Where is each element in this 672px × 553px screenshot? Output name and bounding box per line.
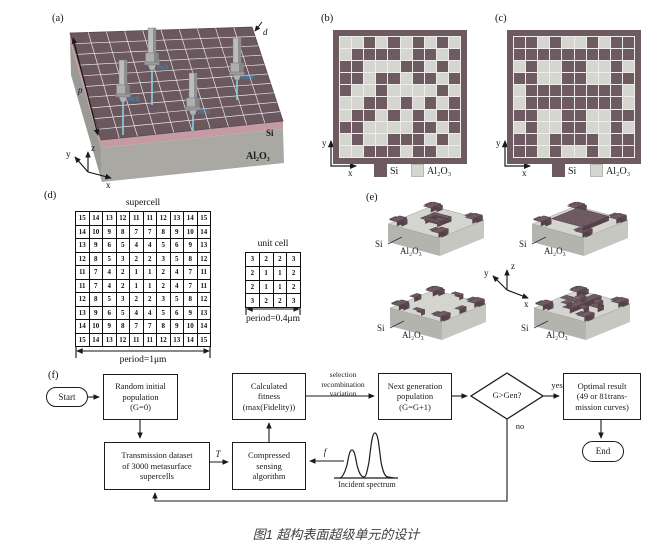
supercell-title: supercell [75,198,211,208]
pattern-cell [449,73,460,84]
transmission-matrix-label: T [212,449,224,459]
pattern-cell [413,110,424,121]
pattern-cell [425,85,436,96]
table-cell: 4 [171,266,184,279]
pattern-cell [388,110,399,121]
shape [154,53,159,62]
pattern-cell [550,97,561,108]
pattern-cell [611,134,622,145]
pattern-cell [376,61,387,72]
pattern-cell [550,110,561,121]
d-tick [255,22,262,31]
pattern-cell [388,73,399,84]
table-cell: 12 [76,293,89,306]
pattern-cell [550,134,561,145]
pattern-cell [538,97,549,108]
pattern-cell [587,97,598,108]
table-cell: 1 [144,266,157,279]
table-cell: 13 [171,334,184,347]
pattern-cell [376,134,387,145]
table-cell: 12 [157,334,170,347]
pattern-cell [526,97,537,108]
table-cell: 3 [246,253,259,266]
pattern-cell [425,61,436,72]
pattern-cell [587,73,598,84]
pattern-cell [538,110,549,121]
random-population-node: Random initial population (G=0) [103,374,178,420]
pattern-cell [388,37,399,48]
pattern-cell [425,122,436,133]
table-cell: 2 [117,280,130,293]
pattern-cell [611,73,622,84]
pattern-cell [526,49,537,60]
pattern-cell [340,73,351,84]
table-cell: 2 [130,253,143,266]
pattern-cell [526,122,537,133]
panel-b-al2o3-swatch [411,164,424,177]
table-cell: 7 [144,320,157,333]
table-cell: 1 [260,281,273,294]
shape [125,85,130,94]
table-cell: 7 [184,280,197,293]
pattern-cell [514,97,525,108]
pattern-cell [352,37,363,48]
panel-c-si-legend: Si [568,166,576,177]
table-cell: 14 [76,226,89,239]
pattern-cell [575,49,586,60]
pattern-cell [526,85,537,96]
pattern-cell [562,110,573,121]
table-cell: 2 [274,294,287,307]
incident-spectrum-curve [334,433,398,478]
panel-b-si-legend: Si [390,166,398,177]
pattern-cell [425,134,436,145]
table-cell: 13 [198,239,211,252]
table-cell: 11 [198,266,211,279]
pattern-cell [340,146,351,157]
table-cell: 13 [76,307,89,320]
pattern-cell [562,97,573,108]
table-cell: 12 [76,253,89,266]
yes-edge-label: yes [545,380,569,390]
pattern-cell [413,49,424,60]
pattern-cell [376,122,387,133]
panel-b-x-label: x [348,168,353,178]
table-cell: 9 [90,239,103,252]
pattern-cell [550,61,561,72]
pattern-cell [437,73,448,84]
table-cell: 8 [90,293,103,306]
si-label: Si [377,323,385,333]
pattern-cell [364,122,375,133]
pattern-cell [587,122,598,133]
pattern-cell [388,49,399,60]
table-cell: 7 [90,266,103,279]
decision-node-label: G>Gen? [471,390,543,400]
pattern-cell [538,37,549,48]
pattern-cell [449,37,460,48]
table-cell: 12 [157,212,170,225]
pattern-cell [611,85,622,96]
pattern-cell [611,97,622,108]
panel-a-label: (a) [52,13,64,24]
shape [124,60,127,85]
pattern-cell [388,122,399,133]
unitcell-slab: SiAl₂O₃ [519,202,628,256]
pattern-cell [550,73,561,84]
next-generation-node: Next generation population (G=G+1) [378,373,452,420]
table-cell: 2 [117,266,130,279]
supercell-table: 1514131211111213141514109877891014139654… [75,211,211,347]
table-cell: 7 [90,280,103,293]
pattern-cell [401,122,412,133]
table-cell: 5 [117,307,130,320]
table-cell: 11 [198,280,211,293]
panel-b-label: (b) [321,13,333,24]
panel-b-pattern-grid [333,30,467,164]
shape [194,73,197,98]
pattern-cell [437,110,448,121]
compressed-sensing-node: Compressed sensing algorithm [232,442,306,490]
pattern-cell [352,122,363,133]
pattern-cell [376,73,387,84]
pattern-cell [599,146,610,157]
si-label: Si [375,239,383,249]
pattern-cell [623,110,634,121]
pattern-cell [425,146,436,157]
table-cell: 1 [260,267,273,280]
table-cell: 9 [103,320,116,333]
table-cell: 4 [103,266,116,279]
table-cell: 4 [171,280,184,293]
pattern-cell [623,97,634,108]
table-cell: 13 [76,239,89,252]
pattern-cell [413,146,424,157]
pattern-cell [449,122,460,133]
pattern-cell [425,49,436,60]
pattern-cell [437,49,448,60]
panel-e-unitcell-renders: SiAl₂O₃SiAl₂O₃SiAl₂O₃SiAl₂O₃ y z x [360,190,672,370]
si-label: Si [519,239,527,249]
pattern-cell [340,122,351,133]
pattern-cell [599,73,610,84]
pattern-cell [376,49,387,60]
table-cell: 2 [157,266,170,279]
pattern-cell [340,134,351,145]
z-axis-label: z [91,143,95,153]
pattern-cell [587,134,598,145]
table-cell: 12 [117,212,130,225]
pattern-cell [623,146,634,157]
pattern-cell [575,97,586,108]
table-cell: 9 [103,226,116,239]
panel-e-x-label: x [524,299,529,309]
pattern-cell [550,146,561,157]
table-cell: 3 [117,253,130,266]
table-cell: 9 [90,307,103,320]
pattern-cell [388,146,399,157]
table-cell: 8 [184,293,197,306]
table-cell: 15 [76,212,89,225]
table-cell: 14 [198,320,211,333]
pattern-cell [599,134,610,145]
pattern-cell [599,37,610,48]
pattern-cell [340,61,351,72]
table-cell: 2 [144,293,157,306]
pattern-cell [623,122,634,133]
incident-f-label: f [319,447,331,457]
pattern-cell [352,97,363,108]
panel-c-pattern-grid [507,30,641,164]
table-cell: 1 [130,266,143,279]
panel-a-3d-schematic: p d etchetchetchetch Si Al₂O₃ y z x [30,5,310,190]
table-cell: 12 [117,334,130,347]
pattern-cell [550,37,561,48]
y-axis-label: y [66,149,71,159]
pattern-cell [587,49,598,60]
pattern-cell [449,134,460,145]
pattern-cell [437,97,448,108]
al2o3-label: Al₂O₃ [544,246,566,256]
pattern-cell [611,49,622,60]
pattern-cell [562,134,573,145]
al2o3-label: Al₂O₃ [246,151,270,162]
optimal-result-node: Optimal result (49 or 81trans- mission c… [563,373,641,420]
pattern-cell [538,146,549,157]
pattern-cell [514,146,525,157]
pattern-cell [538,73,549,84]
pattern-cell [437,134,448,145]
table-cell: 4 [103,280,116,293]
table-cell: 1 [144,280,157,293]
pattern-cell [575,73,586,84]
pattern-cell [599,85,610,96]
table-cell: 11 [130,334,143,347]
pattern-cell [413,134,424,145]
pattern-cell [376,146,387,157]
pattern-cell [623,49,634,60]
pattern-cell [587,37,598,48]
table-cell: 9 [184,239,197,252]
pattern-cell [425,97,436,108]
table-cell: 4 [130,239,143,252]
pattern-cell [401,37,412,48]
table-cell: 8 [157,320,170,333]
pattern-cell [388,61,399,72]
table-cell: 5 [171,293,184,306]
pattern-cell [575,61,586,72]
pattern-cell [526,134,537,145]
pattern-cell [413,37,424,48]
pattern-cell [449,85,460,96]
table-cell: 11 [130,212,143,225]
unitcell-slab: SiAl₂O₃ [377,286,486,340]
pattern-cell [623,134,634,145]
pattern-cell [352,146,363,157]
table-cell: 14 [184,334,197,347]
panel-c-label: (c) [495,13,507,24]
transmission-dataset-node: Transmission dataset of 3000 metasurface… [104,442,210,490]
table-cell: 1 [274,267,287,280]
table-cell: 3 [157,253,170,266]
pattern-cell [550,85,561,96]
table-cell: 5 [157,307,170,320]
pattern-cell [562,73,573,84]
panel-b-al2o3-legend: Al₂O₃ [427,166,451,177]
pattern-cell [388,85,399,96]
end-node: End [582,441,624,462]
etch-label: etch [198,108,210,116]
table-cell: 13 [103,212,116,225]
table-cell: 7 [130,320,143,333]
pattern-cell [413,61,424,72]
table-cell: 11 [76,266,89,279]
panel-e-y-label: y [484,268,489,278]
pattern-cell [352,134,363,145]
shape [153,28,156,53]
table-cell: 8 [157,226,170,239]
table-cell: 2 [287,281,300,294]
pattern-cell [401,85,412,96]
pattern-cell [514,61,525,72]
pattern-cell [413,73,424,84]
table-cell: 11 [144,334,157,347]
table-cell: 7 [184,266,197,279]
pattern-cell [401,97,412,108]
pattern-cell [611,61,622,72]
table-cell: 9 [171,226,184,239]
pattern-cell [526,73,537,84]
pattern-cell [364,146,375,157]
table-cell: 8 [184,253,197,266]
pattern-cell [526,37,537,48]
pattern-cell [364,49,375,60]
table-cell: 15 [198,212,211,225]
pattern-cell [413,122,424,133]
etch-label: etch [242,73,254,81]
table-cell: 9 [171,320,184,333]
table-cell: 1 [130,280,143,293]
pattern-cell [340,37,351,48]
table-cell: 2 [130,293,143,306]
table-cell: 8 [117,320,130,333]
table-cell: 12 [198,293,211,306]
pattern-cell [611,37,622,48]
table-cell: 15 [198,334,211,347]
pattern-cell [526,146,537,157]
panel-e-z-label: z [511,261,515,271]
table-cell: 10 [90,226,103,239]
table-cell: 2 [260,294,273,307]
pattern-cell [388,134,399,145]
unitcell-table: 3223211221123223 [245,252,301,308]
pattern-cell [575,134,586,145]
unitcell-slab: SiAl₂O₃ [375,202,484,256]
pattern-cell [437,85,448,96]
table-cell: 3 [157,293,170,306]
shape [239,63,244,72]
pattern-cell [538,49,549,60]
pattern-cell [575,37,586,48]
pattern-cell [623,73,634,84]
table-cell: 5 [103,293,116,306]
table-cell: 14 [76,320,89,333]
pattern-cell [364,85,375,96]
pattern-cell [514,134,525,145]
pattern-cell [413,97,424,108]
pattern-cell [437,146,448,157]
pattern-cell [376,97,387,108]
al2o3-label: Al₂O₃ [400,246,422,256]
table-cell: 3 [287,294,300,307]
x-axis-label: x [106,180,111,190]
table-cell: 11 [76,280,89,293]
pattern-cell [575,122,586,133]
start-node: Start [46,387,88,407]
pattern-cell [376,85,387,96]
table-cell: 2 [157,280,170,293]
pattern-cell [364,61,375,72]
unitcell-slab: SiAl₂O₃ [521,286,630,340]
pattern-cell [449,61,460,72]
d-label: d [263,27,268,37]
panel-c-x-label: x [522,168,527,178]
pattern-cell [364,134,375,145]
table-cell: 8 [90,253,103,266]
table-cell: 6 [103,307,116,320]
pattern-cell [623,61,634,72]
pattern-cell [526,61,537,72]
shape [195,98,200,107]
pattern-cell [401,134,412,145]
pattern-cell [340,85,351,96]
pattern-cell [352,85,363,96]
pattern-cell [538,61,549,72]
table-cell: 7 [144,226,157,239]
calculated-fitness-node: Calculated fitness (max(Fidelity)) [232,373,306,420]
pattern-cell [437,61,448,72]
unitcell-title: unit cell [245,239,301,249]
pattern-cell [599,49,610,60]
table-cell: 4 [144,307,157,320]
table-cell: 3 [246,294,259,307]
pattern-cell [449,49,460,60]
table-cell: 6 [171,307,184,320]
table-cell: 2 [274,253,287,266]
pattern-cell [562,85,573,96]
pattern-cell [401,49,412,60]
pattern-cell [449,110,460,121]
pattern-cell [587,85,598,96]
table-cell: 10 [184,320,197,333]
pattern-cell [514,49,525,60]
table-cell: 13 [103,334,116,347]
pattern-cell [352,110,363,121]
pattern-cell [401,110,412,121]
figure-1: (a) p d etchetchetchetch Si Al₂O₃ y z x [0,0,672,553]
p-label: p [77,85,83,95]
pattern-cell [340,110,351,121]
pattern-cell [623,85,634,96]
supercell-period: period=1μm [75,355,211,365]
pattern-cell [437,122,448,133]
table-cell: 4 [130,307,143,320]
pattern-cell [340,97,351,108]
pattern-cell [352,61,363,72]
pattern-cell [425,37,436,48]
table-cell: 14 [198,226,211,239]
figure-caption: 图1 超构表面超级单元的设计 [0,524,672,543]
